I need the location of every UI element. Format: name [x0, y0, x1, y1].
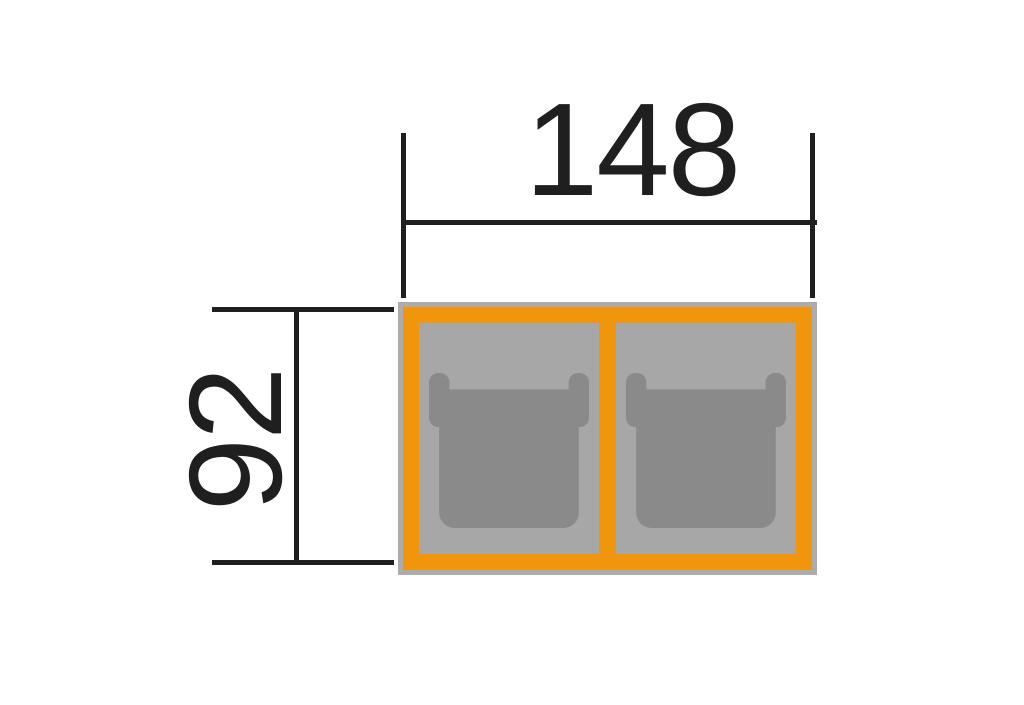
- height-dimension-line: [294, 309, 299, 565]
- diagram-canvas: 148 92: [0, 0, 1024, 705]
- bin-compartment-right: [616, 323, 796, 554]
- brand-logo: ma Mon Aménagement JARDIN www.monamenage…: [0, 640, 220, 702]
- height-dimension-bottom-tick: [212, 560, 394, 565]
- bin-shelter-plan: [398, 302, 817, 575]
- height-dimension-label: 92: [170, 369, 302, 512]
- width-dimension-label: 148: [525, 84, 739, 216]
- waste-bin-top-view-icon: [429, 373, 589, 528]
- width-dimension-right-tick: [810, 133, 815, 298]
- width-dimension-left-tick: [401, 133, 406, 298]
- height-dimension-top-tick: [212, 307, 394, 312]
- waste-bin-top-view-icon: [626, 373, 786, 528]
- bin-compartment-left: [419, 323, 599, 554]
- width-dimension-line: [403, 220, 817, 225]
